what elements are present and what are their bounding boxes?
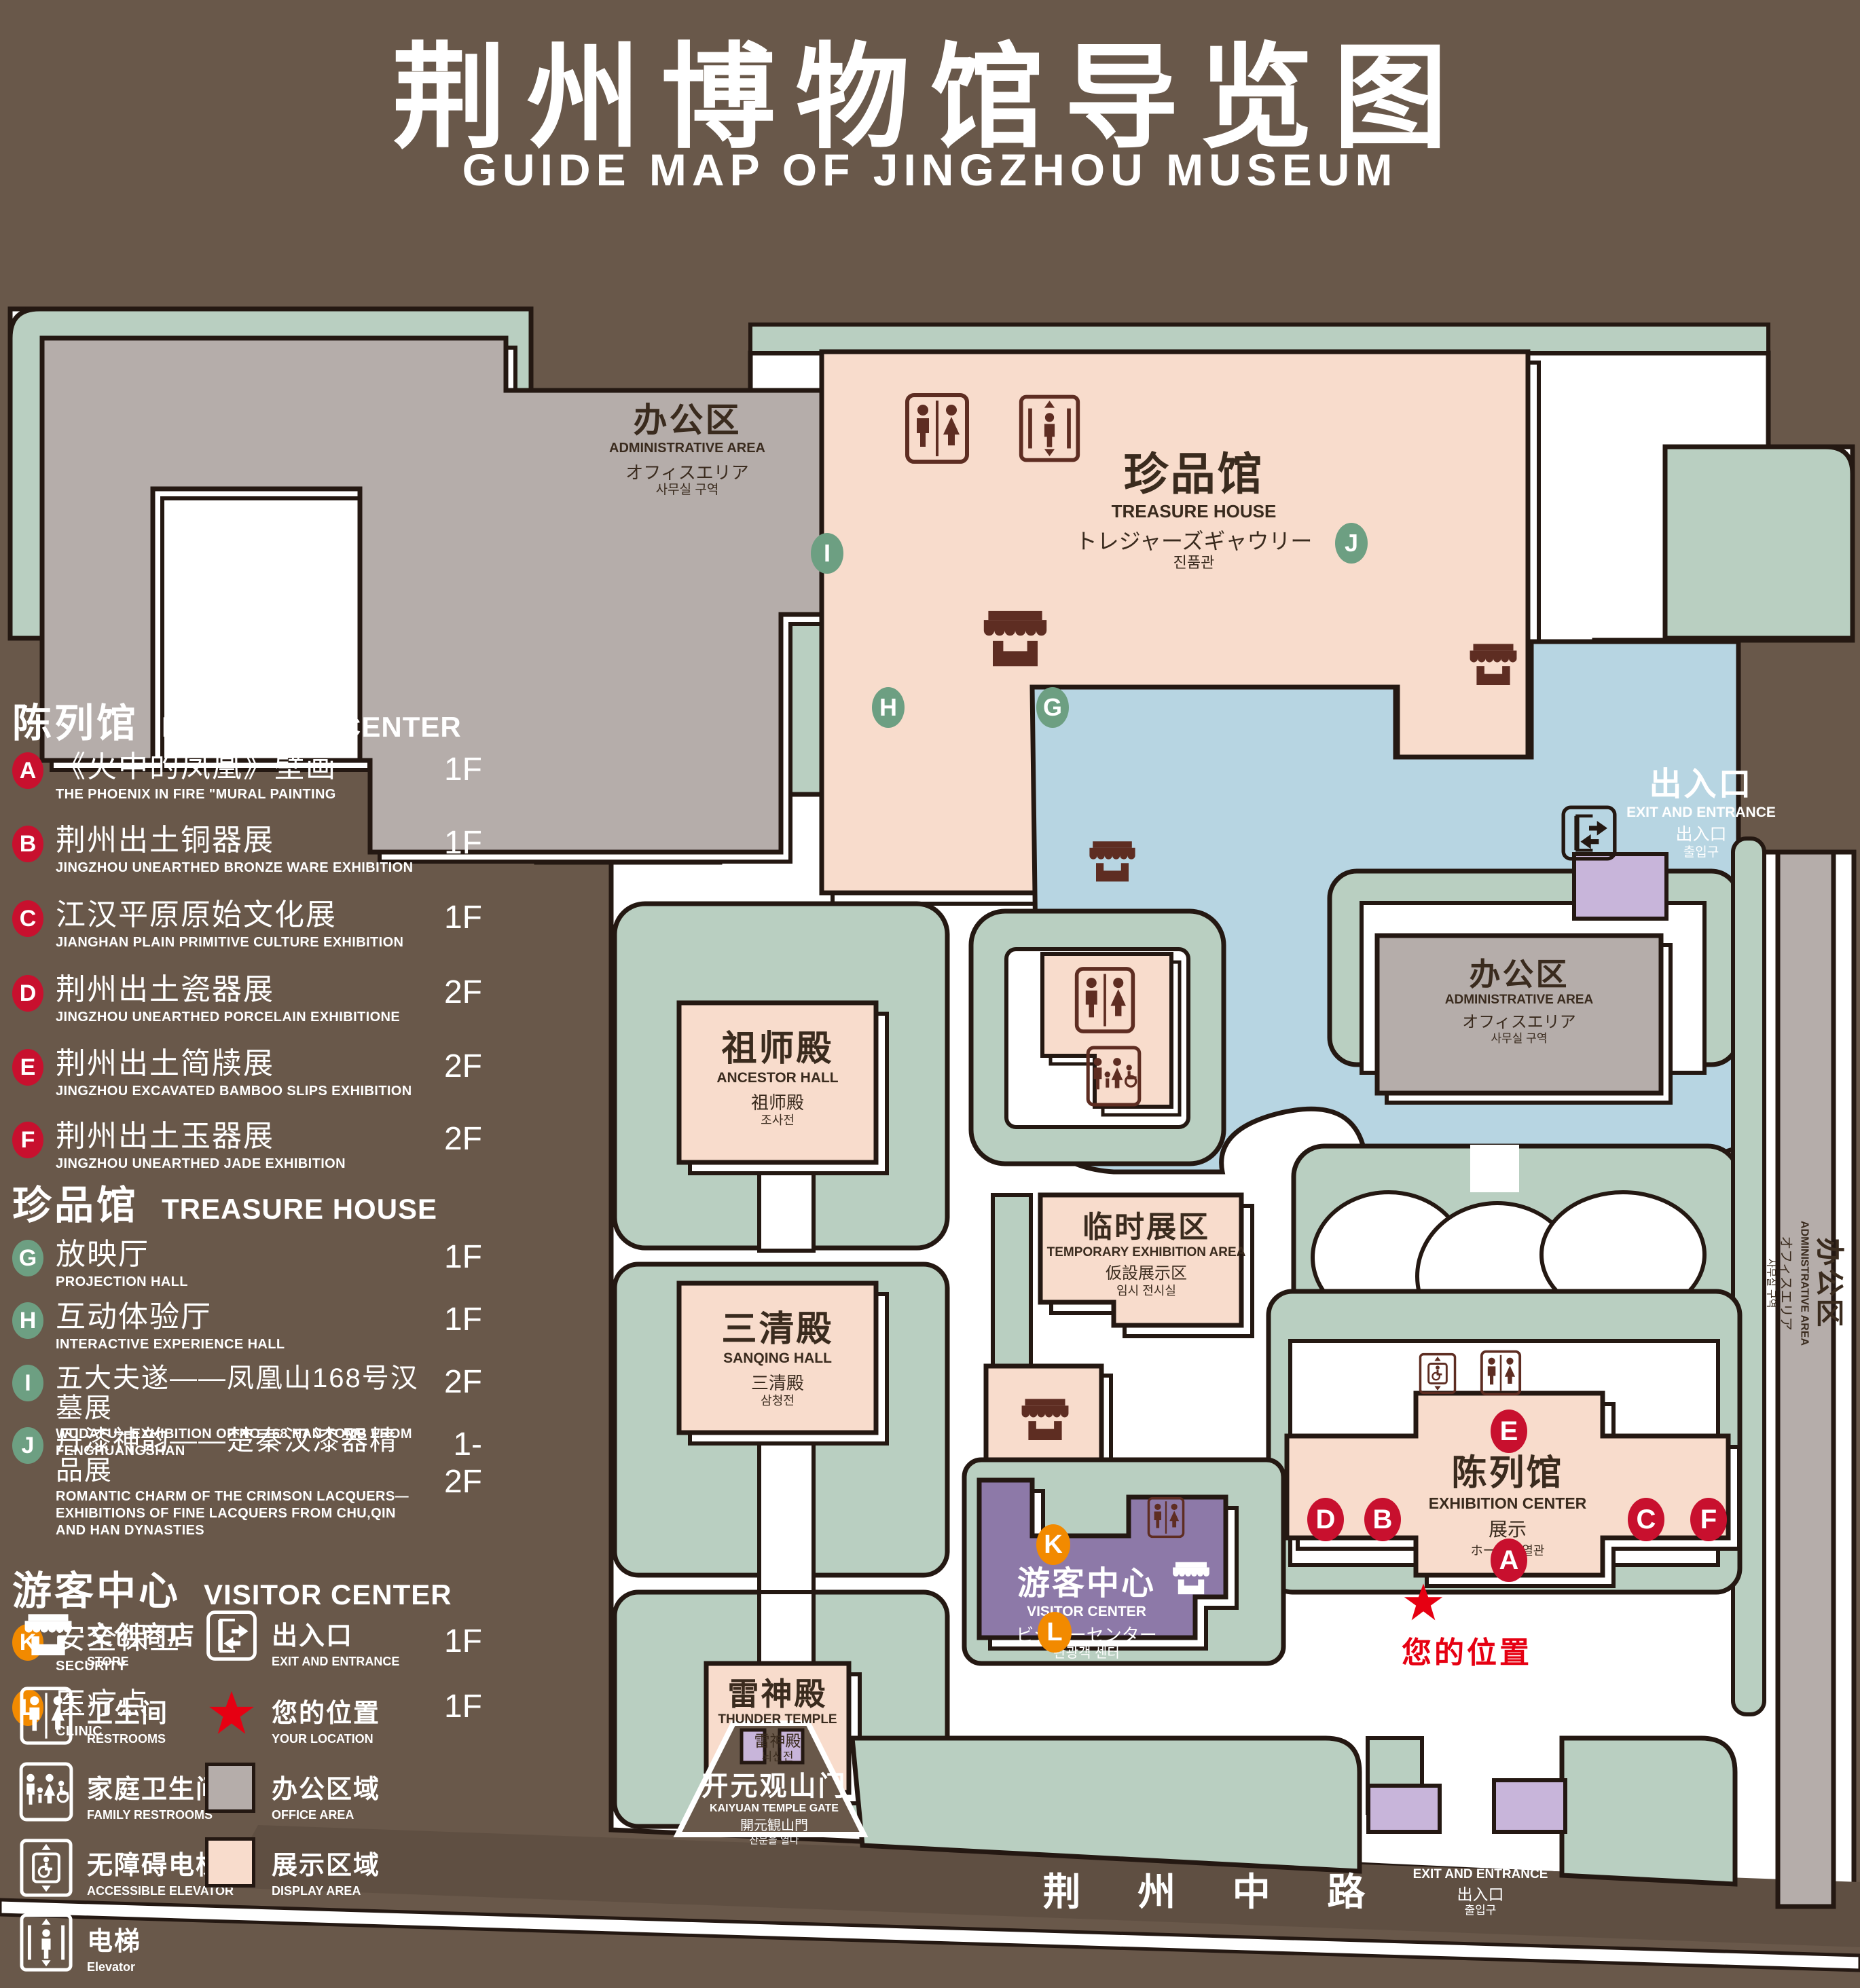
store-icon [1085,830,1139,898]
courtyard-path-3 [759,1592,814,1663]
store-icon [978,603,1053,680]
green-strip-top [750,325,1768,353]
map-marker-H: H [872,687,905,728]
garden-path-top [1470,1145,1519,1192]
restroom-icon [903,390,971,466]
admin-right-label: 办公区 ADMINISTRATIVE AREA オフィスエリア 사무실 구역 [1445,956,1594,1046]
legend-symbol-restrooms-label: 卫生间 RESTROOMS [87,1692,168,1746]
legend-symbol-display-label: 展示区域 DISPLAY AREA [272,1844,380,1898]
restroom-icon [1479,1348,1522,1397]
elevator-icon [1017,390,1082,466]
guide-map-poster: 荆州博物馆导览图 GUIDE MAP OF JINGZHOU MUSEUM [0,0,1860,1988]
family-restroom-icon [1085,1044,1142,1108]
courtyard-path-2 [759,1433,814,1596]
green-block-topright [1665,447,1853,638]
accessible-elevator-icon [1418,1351,1457,1396]
legend-symbol-office-label: 办公区域 OFFICE AREA [272,1768,380,1822]
east-exit-label: 出入口 EXIT AND ENTRANCE 出入口 출입구 [1626,766,1776,860]
display-area-swatch [205,1837,255,1888]
green-bottom-right-mass [1562,1738,1735,1884]
map-marker-F: F [1690,1498,1727,1541]
your-location-text: 您的位置 [1402,1628,1532,1672]
legend-symbol-store-label: 文创商店 STORE [87,1615,196,1669]
your-location-star-icon [1403,1582,1444,1623]
legend-symbol-elevator-label: 电梯 Elevator [87,1920,141,1974]
kaiyuan-gate-label: 开元观山门 KAIYUAN TEMPLE GATE 開元観山門 산문을 열다 [701,1771,847,1846]
south-exit-pad-right [1494,1780,1565,1832]
exit-icon [1558,803,1620,864]
map-marker-J: J [1335,523,1368,564]
legend-symbol-exit-label: 出入口 EXIT AND ENTRANCE [272,1615,399,1669]
thunder-temple-label: 雷神殿 THUNDER TEMPLE 雷神殿 뇌신전 [718,1676,837,1764]
elevator-icon [18,1909,74,1976]
legend-symbol-family-label: 家庭卫生间 FAMILY RESTROOMS [87,1768,223,1822]
admin-strip-building [1778,852,1834,1907]
map-marker-D: D [1307,1498,1344,1541]
store-icon [1465,630,1521,703]
legend-section-exhibition-title: 陈列馆EXHIBITION CENTER [12,691,462,748]
treasure-house-label: 珍品馆 TREASURE HOUSE トレジャーズギャウリー 진품관 [1076,448,1313,572]
map-marker-B: B [1364,1498,1401,1541]
south-exit-label: 出入口 EXIT AND ENTRANCE 出入口 출입구 [1413,1832,1548,1917]
restroom-icon [18,1684,74,1748]
restroom-icon [1073,963,1137,1037]
map-marker-I: I [811,533,843,574]
admin-strip-label: 办公区 ADMINISTRATIVE AREA オフィスエリア 사무실 구역 [1764,1221,1846,1346]
sanqing-hall-label: 三清殿 SANQING HALL 三清殿 삼청전 [721,1309,833,1408]
family-restroom-icon [18,1760,74,1824]
ancestor-hall-label: 祖师殿 ANCESTOR HALL 祖师殿 조사전 [716,1029,838,1128]
store-icon [1017,1391,1073,1453]
map-marker-K: K [1036,1524,1070,1565]
map-marker-A: A [1491,1539,1527,1582]
map-marker-E: E [1491,1410,1527,1453]
east-exit-pad [1574,854,1666,919]
road-label: 荆 州 中 路 [1043,1862,1389,1917]
admin-topleft-label: 办公区 ADMINISTRATIVE AREA オフィスエリア 사무실 구역 [609,401,765,498]
restroom-icon [1146,1495,1186,1540]
courtyard-path-1 [759,1162,814,1251]
map-marker-C: C [1628,1498,1664,1541]
store-icon [1169,1556,1213,1604]
legend-symbol-location-label: 您的位置 YOUR LOCATION [272,1692,380,1746]
temporary-area-label: 临时展区 TEMPORARY EXHIBITION AREA 仮設展示区 임시 … [1047,1210,1246,1298]
visitor-center-label: 游客中心 VISITOR CENTER ビジターセンター 관광객 센터 [1016,1565,1156,1662]
store-icon [20,1610,76,1663]
legend-section-treasure-title: 珍品馆TREASURE HOUSE [12,1173,437,1230]
accessible-elevator-icon [18,1835,74,1901]
map-marker-G: G [1036,687,1069,728]
map-marker-L: L [1038,1612,1072,1653]
exit-icon [204,1608,259,1663]
south-exit-pad-left [1368,1786,1440,1832]
office-area-swatch [205,1763,255,1813]
your-location-star-icon [208,1689,255,1737]
